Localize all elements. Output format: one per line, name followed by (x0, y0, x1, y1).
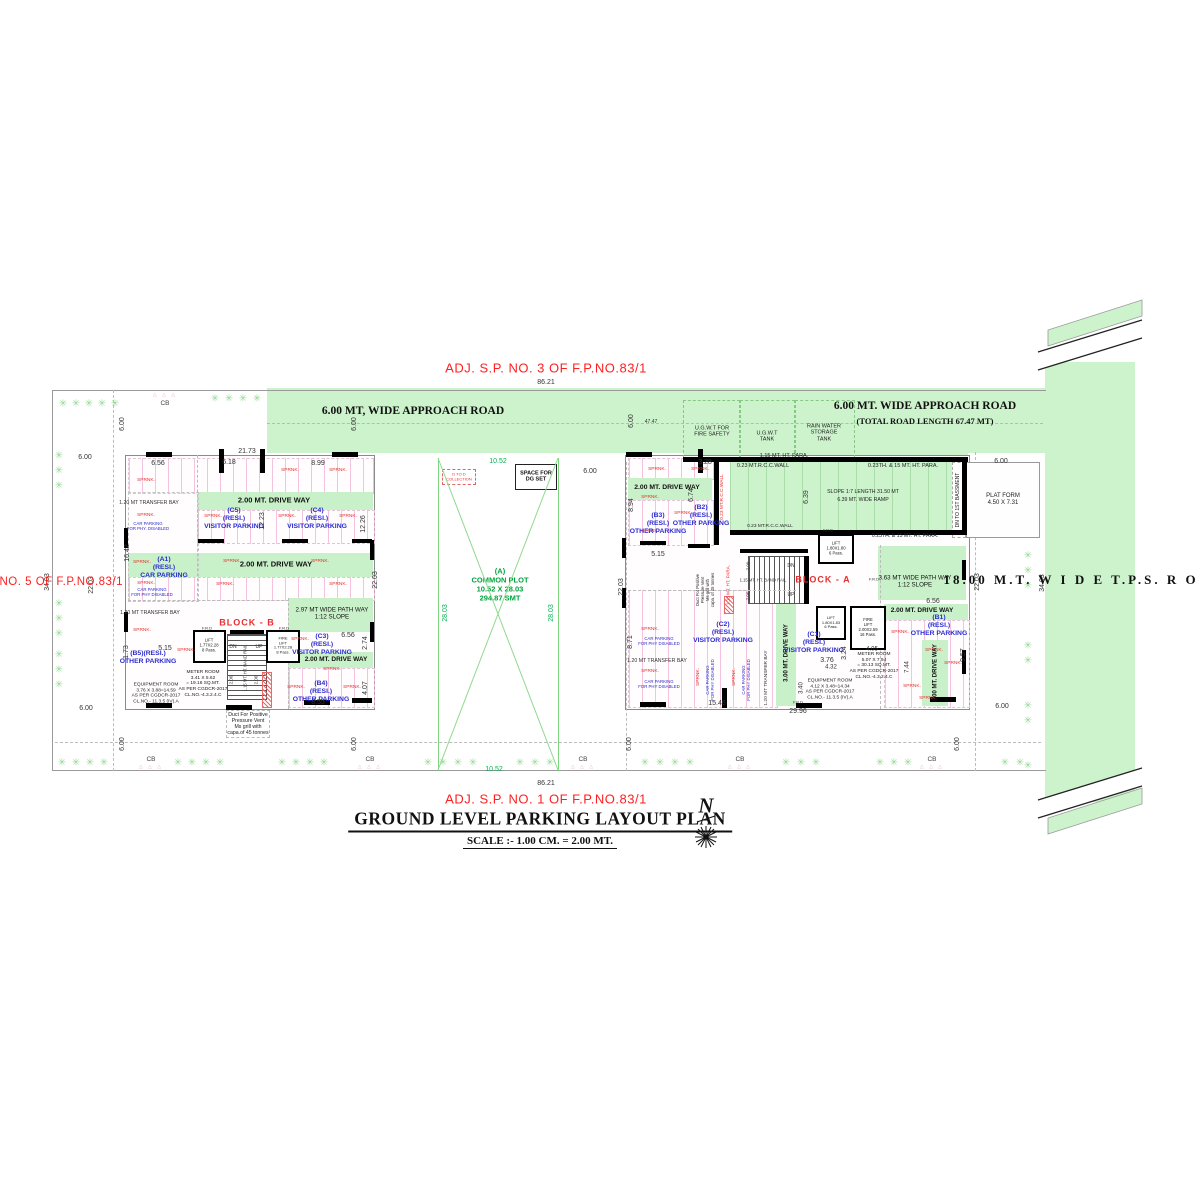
block-b-inner-h (128, 600, 289, 601)
annotation-text: 6.00 (583, 468, 597, 476)
rainwater-tank (795, 400, 855, 458)
annotation-text: 6.00 (79, 705, 93, 713)
approach-road-band (267, 388, 1045, 453)
tree-icon: ✳ (100, 758, 108, 769)
tree-icon: ✳ (292, 758, 300, 769)
cb-mark: CB (160, 400, 169, 408)
block-a-inner-h (628, 590, 796, 591)
tree-icon: ✳ (55, 665, 63, 676)
annotation-text: 6.00 (351, 737, 359, 751)
stair-block-a (748, 556, 808, 604)
tps-road-band (1045, 362, 1135, 802)
wall-segment (688, 544, 710, 548)
pathway-a (878, 546, 966, 600)
wall-segment (730, 530, 964, 535)
duct-note-box (226, 710, 270, 738)
tree-icon: ✳ (55, 599, 63, 610)
stalls-b-row1 (128, 458, 374, 494)
page-title: GROUND LEVEL PARKING LAYOUT PLAN (348, 809, 732, 833)
annotation-text: 6.00 (626, 737, 634, 751)
wall-segment (804, 556, 809, 604)
tree-icon: ✳ (55, 481, 63, 492)
road-break-top-wedge (1048, 300, 1142, 346)
tree-icon: ✳ (59, 399, 67, 410)
wall-segment (962, 650, 966, 674)
fire-lift-a (850, 606, 886, 650)
annotation-text: CB (365, 756, 374, 764)
tree-icon: ✳ (174, 758, 182, 769)
tree-icon: ✳ (1016, 758, 1024, 769)
plot-boundary-bottom (52, 770, 1046, 771)
tree-icon: ✳ (1024, 566, 1032, 577)
tree-icon: ✳ (812, 758, 820, 769)
tree-icon: ✳ (55, 466, 63, 477)
wall-segment (226, 705, 252, 710)
tree-icon: ✳ (1024, 656, 1032, 667)
driveway-a1 (628, 478, 712, 500)
wall-segment (622, 588, 626, 608)
wall-segment (640, 541, 666, 545)
wall-segment (146, 703, 172, 708)
tree-icon: ✳ (86, 758, 94, 769)
stalls-a-row2 (628, 500, 714, 546)
annotation-text: 28.03 (548, 604, 556, 622)
fire-lift-b (266, 630, 300, 663)
wall-segment (304, 700, 330, 705)
tree-icon: ✳ (890, 758, 898, 769)
annotation-text: 6.00 (995, 703, 1009, 711)
tree-icon: ✳ (306, 758, 314, 769)
tree-icon: ✳ (1001, 758, 1009, 769)
tree-icon: ✳ (225, 394, 233, 405)
common-plot-edge-right (558, 458, 559, 771)
wall-segment (352, 539, 372, 543)
wall-segment (352, 698, 372, 703)
plot-boundary-top (52, 390, 1046, 391)
tree-icon: ✳ (239, 394, 247, 405)
tree-icon: ✳ (55, 451, 63, 462)
wall-segment (962, 462, 967, 535)
lift-a-top (818, 534, 854, 564)
wall-segment (640, 702, 666, 707)
pathway-b (288, 598, 373, 632)
tree-icon: ✳ (98, 399, 106, 410)
annotation-text: CB (927, 756, 936, 764)
stalls-a-row3 (628, 590, 778, 708)
tree-icon: ✳ (216, 758, 224, 769)
annotation-text: 10.52 (489, 458, 507, 466)
driveway-b3 (288, 652, 373, 668)
wall-segment (722, 688, 727, 708)
lift-b (193, 630, 226, 663)
adjacent-plot-top: ADJ. S.P. NO. 3 OF F.P.NO.83/1 (445, 361, 647, 376)
wall-segment (124, 612, 128, 632)
wall-segment (332, 452, 358, 457)
road-break-line (1038, 320, 1142, 352)
wall-segment (626, 452, 652, 457)
tree-icon: ✳ (85, 399, 93, 410)
adjacent-plot-bottom: ADJ. S.P. NO. 1 OF F.P.NO.83/1 (445, 792, 647, 807)
wall-segment (198, 539, 224, 543)
tree-icon: ✳ (188, 758, 196, 769)
annotation-text: CB (578, 756, 587, 764)
tree-icon: ✳ (546, 758, 554, 769)
ext-line-left (113, 390, 114, 771)
tree-icon: ✳ (320, 758, 328, 769)
scale-note: SCALE :- 1.00 CM. = 2.00 MT. (463, 835, 617, 849)
duct-shaft-b (262, 672, 272, 708)
tree-icon: ✳ (641, 758, 649, 769)
annotation-text: 6.00 (954, 737, 962, 751)
left-col-bays (128, 492, 199, 602)
tree-icon: ✳ (55, 629, 63, 640)
wall-segment (698, 449, 703, 473)
annotation-text: 6.00 (119, 737, 127, 751)
tree-icon: ✳ (211, 394, 219, 405)
tree-icon: ✳ (686, 758, 694, 769)
wall-segment (124, 528, 128, 548)
stair-block-b (227, 634, 267, 700)
ground-level-parking-layout-plan: ✳✳✳✳✳✳✳✳✳✳✳✳✳✳✳✳✳✳✳✳✳✳✳✳✳✳✳✳✳✳✳✳✳✳✳✳✳✳✳✳… (0, 0, 1200, 1200)
tree-icon: ✳ (516, 758, 524, 769)
tree-icon: ✳ (1024, 551, 1032, 562)
tree-icon: ✳ (439, 758, 447, 769)
ext-line-mid (626, 462, 627, 771)
wall-segment (260, 449, 265, 473)
ugwt-fire-tank (683, 400, 740, 458)
tree-icon: ✳ (55, 680, 63, 691)
driveway-a2 (884, 604, 968, 620)
tree-icon: ✳ (782, 758, 790, 769)
tree-icon: ✳ (531, 758, 539, 769)
wall-segment (622, 538, 626, 558)
dg-set-box (515, 464, 557, 490)
lift-a-bottom (816, 606, 846, 640)
wall-segment (219, 449, 224, 473)
wall-segment (370, 540, 374, 560)
block-b-inner-v1 (197, 455, 198, 601)
tree-icon: ✳ (797, 758, 805, 769)
annotation-text: 28.03 (442, 604, 450, 622)
tree-icon: ✳ (454, 758, 462, 769)
cb-hatch: △ △ △ (153, 393, 177, 399)
tree-icon: ✳ (469, 758, 477, 769)
wall-segment (282, 539, 308, 543)
duct-shaft-a (724, 596, 734, 614)
common-plot-edge-left (438, 458, 439, 771)
tree-icon: ✳ (424, 758, 432, 769)
tree-icon: ✳ (253, 394, 261, 405)
wall-segment (796, 703, 822, 708)
dim-left-height: 34.03 (44, 573, 52, 591)
tree-icon: ✳ (904, 758, 912, 769)
tree-icon: ✳ (55, 614, 63, 625)
ext-line-bottom (55, 742, 1041, 743)
tree-icon: ✳ (876, 758, 884, 769)
tree-icon: ✳ (55, 650, 63, 661)
tree-icon: ✳ (1024, 701, 1032, 712)
wall-segment (714, 457, 719, 545)
north-arrow-letter: N (698, 794, 713, 818)
wall-segment (740, 549, 808, 553)
d-to-d-box (442, 469, 476, 485)
dim-top-width: 86.21 (537, 379, 555, 387)
dim-bottom-width: 86.21 (537, 780, 555, 788)
tree-icon: ✳ (656, 758, 664, 769)
annotation-text: 6.00 (119, 417, 127, 431)
annotation-text: CB (146, 756, 155, 764)
annotation-text: 22.03 (88, 576, 96, 594)
wall-segment (962, 560, 966, 580)
common-plot-label: (A) COMMON PLOT 10.52 X 28.03 294.87 SMT (471, 567, 528, 602)
tree-icon: ✳ (72, 758, 80, 769)
plot-boundary-left (52, 390, 53, 771)
platform (966, 462, 1040, 538)
driveway-a-vert1 (776, 590, 796, 706)
tree-icon: ✳ (72, 399, 80, 410)
road-centerline (267, 423, 1043, 424)
tree-icon: ✳ (58, 758, 66, 769)
ugwt-tank (740, 400, 795, 458)
tree-icon: ✳ (1024, 716, 1032, 727)
wall-segment (930, 697, 956, 702)
adjacent-plot-left: ADJ. S.P. NO. 5 OF F.P.NO.83/1 (0, 576, 123, 588)
tree-icon: ✳ (1024, 641, 1032, 652)
annotation-text: CB (735, 756, 744, 764)
common-plot-diagonal (438, 458, 558, 770)
tree-icon: ✳ (202, 758, 210, 769)
common-plot-diagonal (438, 458, 558, 770)
wall-segment (683, 457, 968, 462)
driveway-b1 (197, 492, 373, 510)
tree-icon: ✳ (671, 758, 679, 769)
wall-segment (370, 622, 374, 642)
ramp-area (730, 462, 964, 533)
wall-segment (230, 630, 264, 634)
annotation-text: 6.00 (78, 454, 92, 462)
wall-segment (146, 452, 172, 457)
north-compass-star (695, 816, 717, 848)
tree-icon: ✳ (278, 758, 286, 769)
tree-icon: ✳ (1024, 581, 1032, 592)
